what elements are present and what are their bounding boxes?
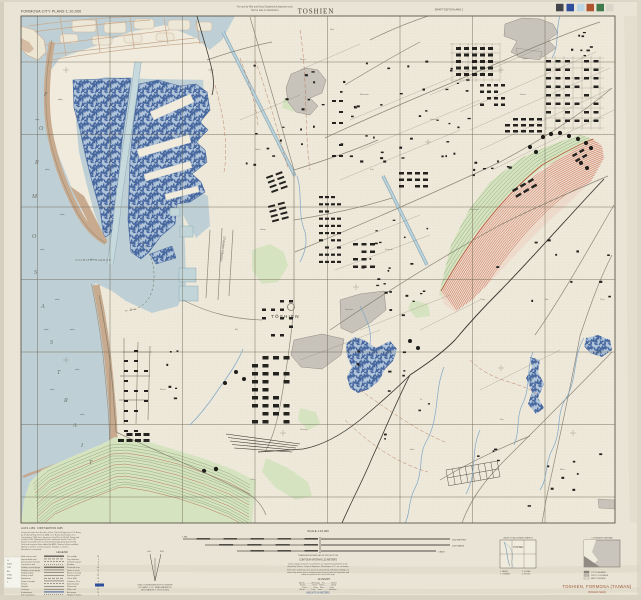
svg-text:Hanpisan: Hanpisan [470, 209, 480, 211]
svg-text:Yama: Yama [480, 299, 486, 301]
svg-text:Embankment: Embankment [21, 591, 33, 594]
svg-text:A: A [40, 304, 45, 310]
svg-text:Sand or gravel: Sand or gravel [67, 574, 80, 577]
svg-text:Bamboo: Bamboo [67, 564, 74, 566]
svg-text:3: 3 [98, 559, 99, 561]
svg-text:Heights in meters: Heights in meters [67, 594, 82, 597]
svg-text:Sakura: Sakura [430, 118, 437, 121]
svg-text:21: 21 [97, 589, 99, 591]
svg-text:S: S [34, 270, 37, 276]
svg-text:Scattered trees: Scattered trees [67, 566, 80, 569]
svg-text:LEGEND: LEGEND [56, 550, 68, 554]
svg-text:Cart track or trail: Cart track or trail [21, 563, 36, 566]
svg-text:R: R [34, 160, 39, 166]
svg-text:19: 19 [97, 578, 99, 580]
svg-text:Semento: Semento [345, 308, 354, 311]
svg-text:CITY PLAN AREA: CITY PLAN AREA [591, 571, 606, 574]
svg-text:G.N.: G.N. [147, 551, 152, 553]
svg-text:DRAFT EDITION-AMS 1: DRAFT EDITION-AMS 1 [435, 8, 464, 12]
svg-text:SCALE 1:10,000: SCALE 1:10,000 [307, 529, 329, 533]
svg-text:Salt evaporators: Salt evaporators [21, 594, 35, 597]
svg-text:G: G [7, 560, 9, 562]
svg-text:1945: 1945 [7, 574, 13, 576]
svg-text:CONTOUR INTERVAL 25 METERS: CONTOUR INTERVAL 25 METERS [299, 559, 337, 562]
svg-text:Rice paddy: Rice paddy [67, 556, 77, 558]
svg-text:Marsh or swamp: Marsh or swamp [67, 572, 81, 575]
svg-text:M: M [31, 194, 38, 200]
svg-text:TOSHIEN, FORMOSA (TAIWAN): TOSHIEN, FORMOSA (TAIWAN) [562, 584, 631, 589]
svg-text:Factory or mill: Factory or mill [21, 574, 33, 577]
svg-text:Orchard or grove: Orchard or grove [67, 561, 81, 564]
svg-text:Warehouse: Warehouse [21, 577, 31, 580]
svg-text:Shimo: Shimo [300, 59, 307, 61]
svg-text:COVERAGE DIAGRAM: COVERAGE DIAGRAM [591, 537, 613, 540]
svg-text:TOSHIEN: TOSHIEN [513, 546, 524, 549]
svg-text:O: O [32, 234, 37, 240]
svg-text:Hospital: Hospital [21, 585, 28, 588]
svg-text:S: S [50, 340, 53, 346]
svg-text:F: F [43, 92, 48, 98]
svg-text:Cemetery: Cemetery [21, 588, 29, 591]
svg-text:Contours, 25 m.: Contours, 25 m. [67, 580, 81, 583]
svg-text:Hikojo: Hikojo [260, 229, 267, 231]
svg-text:O: O [39, 126, 44, 132]
svg-text:Not for sale or distribution.: Not for sale or distribution. [251, 9, 279, 12]
svg-text:Improved dirt road: Improved dirt road [21, 558, 36, 561]
svg-text:HEIGHTS IN METERS: HEIGHTS IN METERS [306, 593, 330, 595]
svg-text:DECLINATION 1° 30′ W. (1945): DECLINATION 1° 30′ W. (1945) [141, 589, 169, 592]
svg-text:Water well: Water well [67, 588, 76, 591]
svg-text:14: 14 [97, 570, 99, 572]
svg-text:(TAKAO-SHŪ): (TAKAO-SHŪ) [588, 590, 606, 594]
svg-text:Hard surface road: Hard surface road [21, 555, 36, 558]
svg-text:PHOTO COVERAGE: PHOTO COVERAGE [591, 574, 609, 577]
svg-text:TOSHIEN: TOSHIEN [298, 8, 335, 16]
svg-text:Heiwa: Heiwa [520, 94, 527, 96]
svg-text:3824: 3824 [7, 564, 13, 566]
svg-text:Yama: Yama [250, 479, 256, 481]
svg-text:3: 3 [98, 564, 99, 566]
svg-text:School: School [21, 584, 27, 586]
svg-text:1 MILE: 1 MILE [438, 552, 445, 554]
svg-text:Machi..............Town Yam: Machi..............Town Yama............… [300, 588, 337, 591]
svg-text:4. RYUSO: 4. RYUSO [522, 574, 531, 576]
svg-text:27: 27 [97, 575, 99, 577]
svg-text:Teishajo: Teishajo [300, 429, 308, 431]
svg-text:Railway: narrow gauge: Railway: narrow gauge [21, 569, 40, 572]
svg-text:Minato: Minato [130, 308, 137, 311]
svg-text:Railway: normal gauge: Railway: normal gauge [21, 566, 40, 569]
svg-text:Grass or scrub: Grass or scrub [67, 569, 79, 572]
svg-text:Dry cultivation: Dry cultivation [67, 558, 79, 561]
svg-text:1500 YARDS: 1500 YARDS [452, 545, 465, 548]
svg-text:Railway station: Railway station [21, 572, 34, 575]
svg-text:Second class dirt road: Second class dirt road [21, 561, 40, 564]
svg-text:Depression: Depression [67, 585, 77, 588]
svg-text:Shrine or temple: Shrine or temple [21, 580, 35, 583]
svg-text:4: 4 [98, 581, 99, 583]
svg-text:2: 2 [98, 595, 99, 597]
svg-text:Kawada: Kawada [385, 249, 393, 251]
svg-text:GLOSSARY: GLOSSARY [318, 578, 331, 581]
svg-text:M.N.: M.N. [160, 551, 165, 553]
svg-text:19: 19 [97, 592, 99, 594]
svg-text:Cliff or bluff: Cliff or bluff [67, 577, 77, 580]
svg-text:Nakasato: Nakasato [360, 93, 370, 96]
svg-text:A: A [72, 423, 77, 429]
svg-text:14: 14 [97, 556, 99, 558]
svg-text:2: 2 [98, 573, 99, 575]
svg-text:1500 METERS: 1500 METERS [452, 540, 466, 542]
svg-text:8: 8 [98, 562, 99, 564]
svg-text:Army Map Service, Corps of Eng: Army Map Service, Corps of Engineers, Wa… [288, 565, 349, 568]
svg-text:Spot elevation: Spot elevation [67, 583, 79, 586]
svg-text:Hama: Hama [255, 149, 261, 151]
svg-text:Anchorage: Anchorage [67, 591, 76, 594]
svg-text:Boundaries unverified.: Boundaries unverified. [21, 548, 42, 551]
svg-text:FORMOSA CITY PLANS 1:10,000: FORMOSA CITY PLANS 1:10,000 [21, 10, 81, 14]
svg-text:A.M.S. L951 FIRST EDITION 19: A.M.S. L951 FIRST EDITION 1945 [21, 526, 63, 530]
svg-text:reference points for the user: reference points for the user of this ma… [301, 573, 334, 576]
svg-text:Mura: Mura [560, 468, 566, 471]
svg-text:TŌSHIEN: TŌSHIEN [271, 313, 300, 319]
svg-text:AMS: AMS [7, 577, 12, 580]
svg-text:MAP COVERAGE: MAP COVERAGE [591, 577, 606, 580]
svg-text:2. TOSHIEN: 2. TOSHIEN [500, 574, 511, 576]
svg-text:18: 18 [97, 567, 99, 569]
svg-text:TRANSVERSE MERCATOR PROJECTION: TRANSVERSE MERCATOR PROJECTION [298, 554, 339, 557]
svg-text:INDEX TO ADJOINING SHEETS: INDEX TO ADJOINING SHEETS [503, 537, 533, 540]
svg-text:Machi: Machi [160, 389, 166, 391]
svg-text:R: R [63, 398, 68, 404]
svg-text:TOSHIEN HARBOR: TOSHIEN HARBOR [75, 258, 112, 262]
